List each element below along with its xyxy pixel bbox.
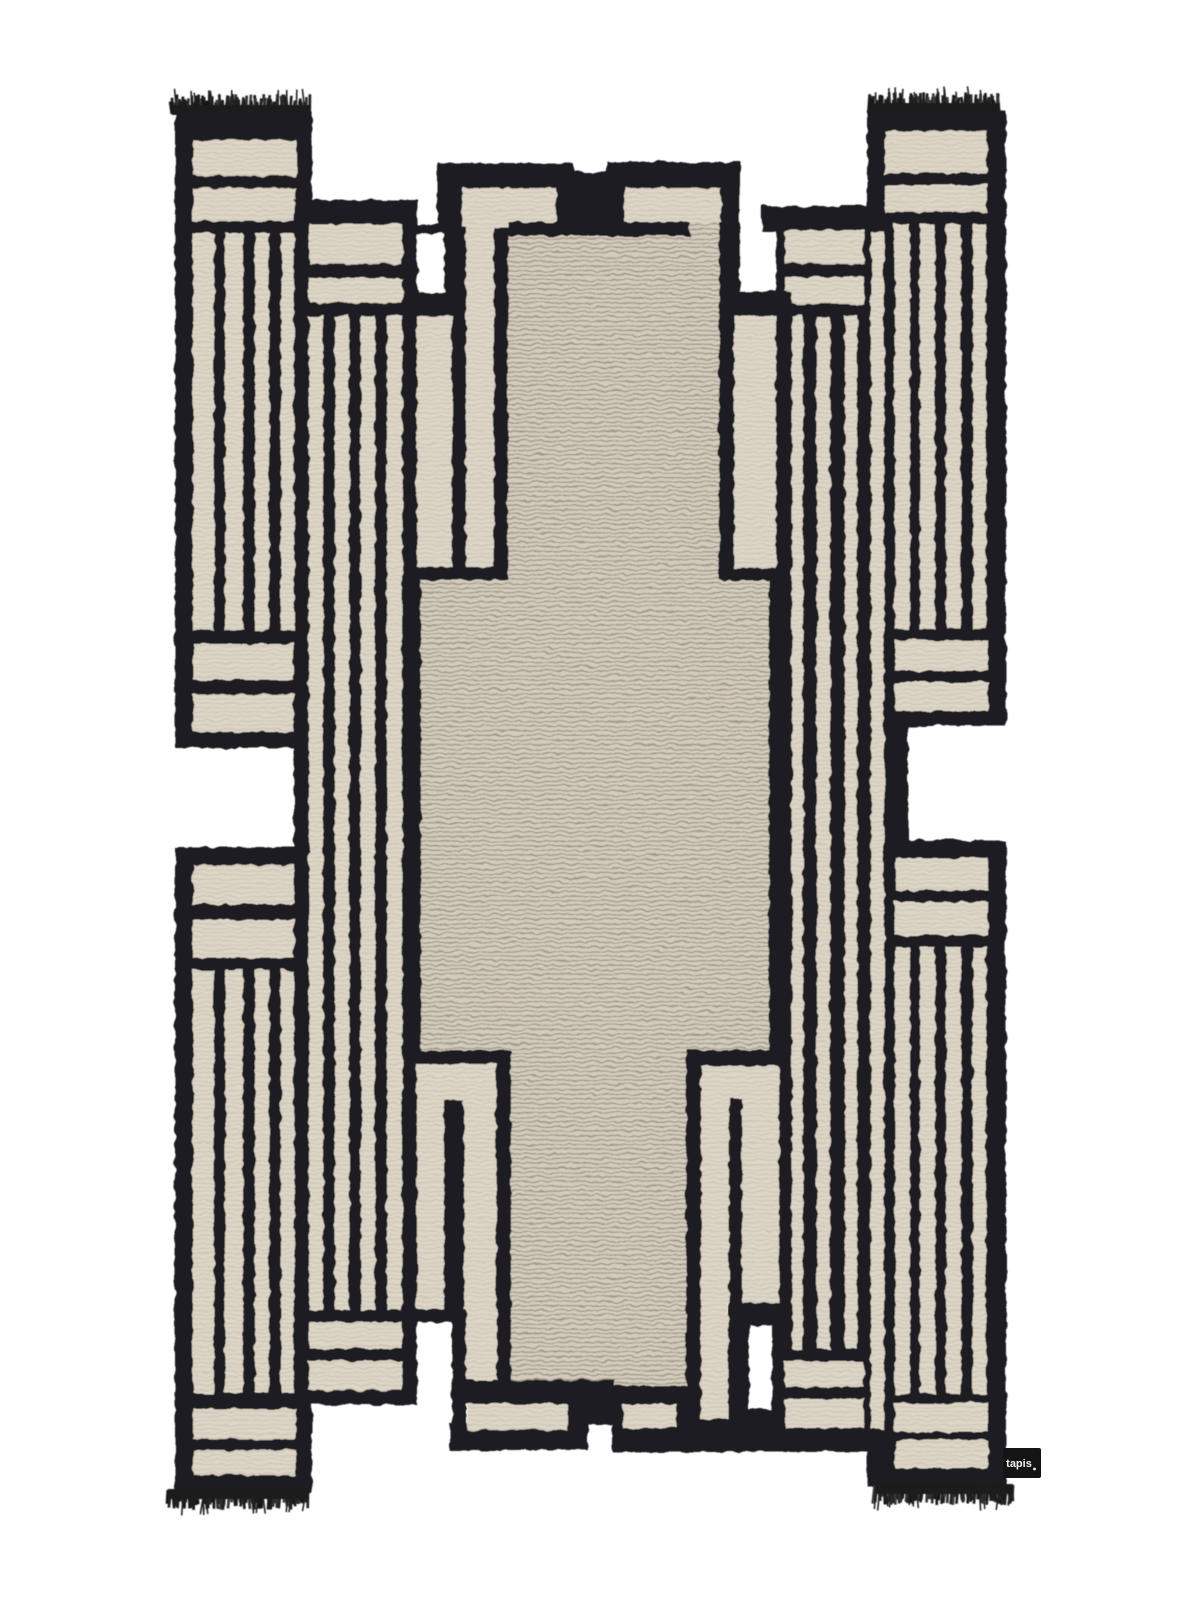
svg-text:tapis: tapis — [1006, 1458, 1032, 1470]
